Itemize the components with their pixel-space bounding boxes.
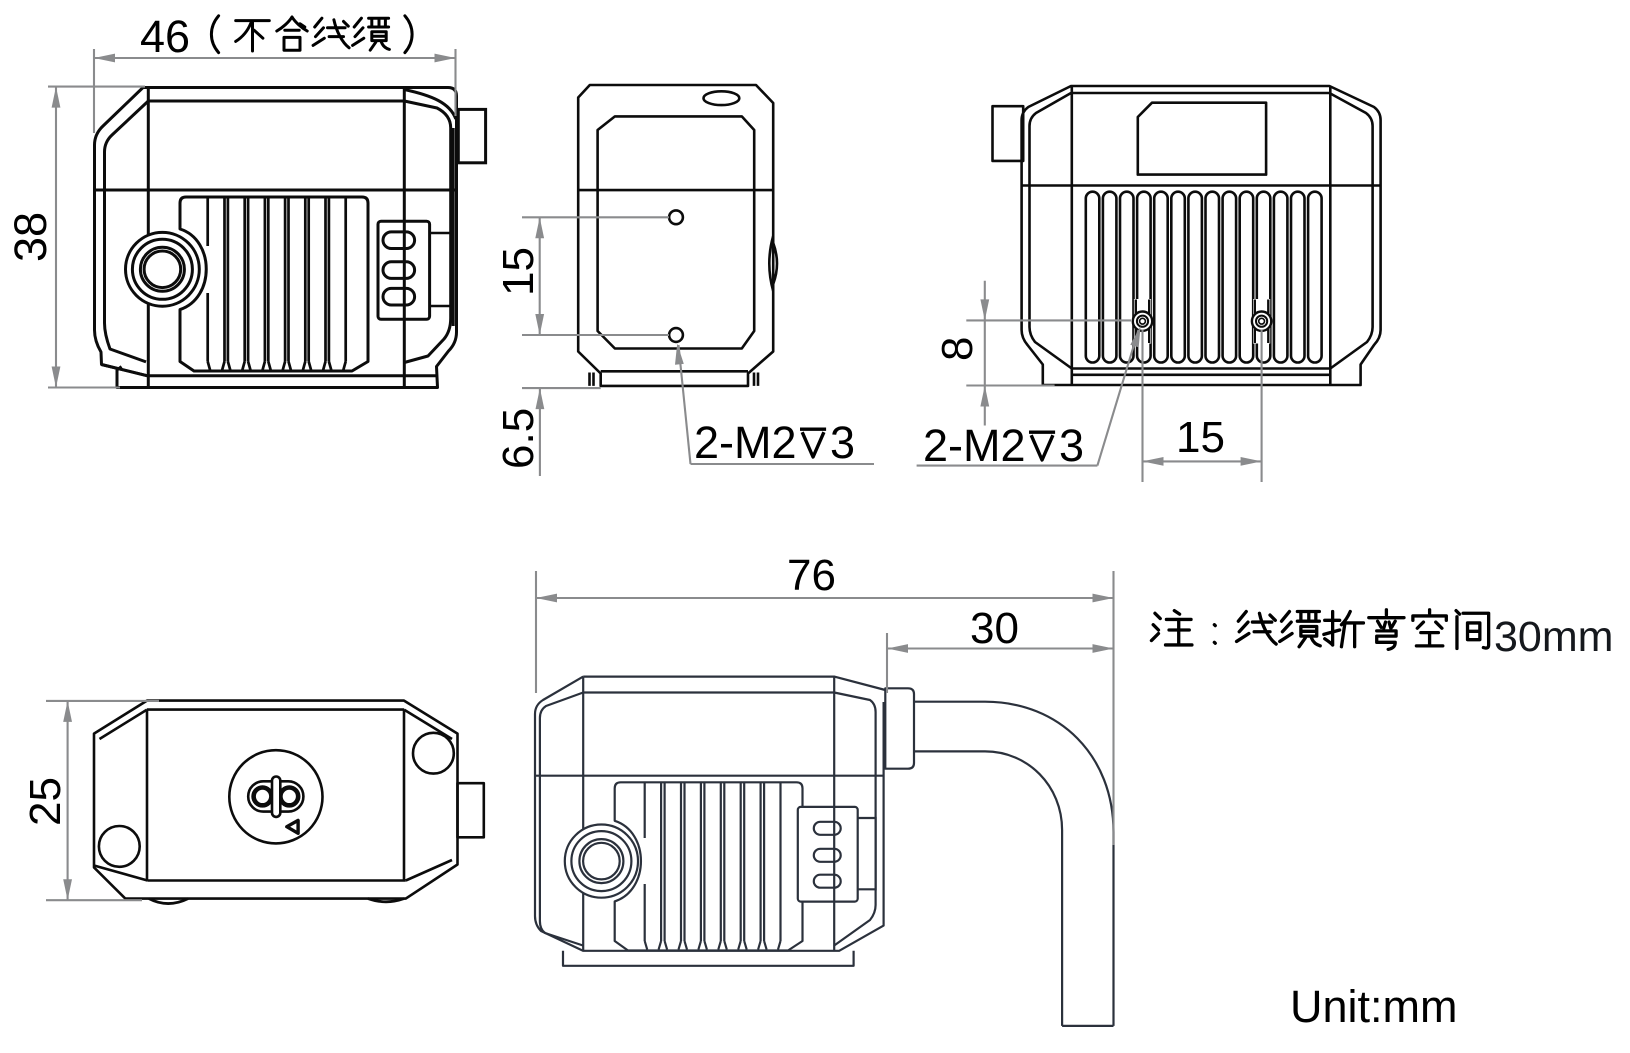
svg-text:Unit:mm: Unit:mm [1290,981,1458,1032]
svg-text:2-M2: 2-M2 [694,417,797,468]
svg-text:8: 8 [933,337,982,361]
svg-text:3: 3 [830,417,855,468]
svg-text:38: 38 [5,212,56,262]
svg-text:3: 3 [1059,420,1084,471]
svg-text:15: 15 [494,247,543,296]
svg-text:25: 25 [21,777,70,826]
svg-text:30mm: 30mm [1494,613,1613,661]
svg-text:2-M2: 2-M2 [923,420,1026,471]
svg-text:76: 76 [787,551,836,600]
svg-text:46: 46 [140,11,190,62]
svg-text:30: 30 [970,604,1019,653]
svg-text:6.5: 6.5 [494,408,543,469]
svg-text:15: 15 [1176,413,1225,462]
